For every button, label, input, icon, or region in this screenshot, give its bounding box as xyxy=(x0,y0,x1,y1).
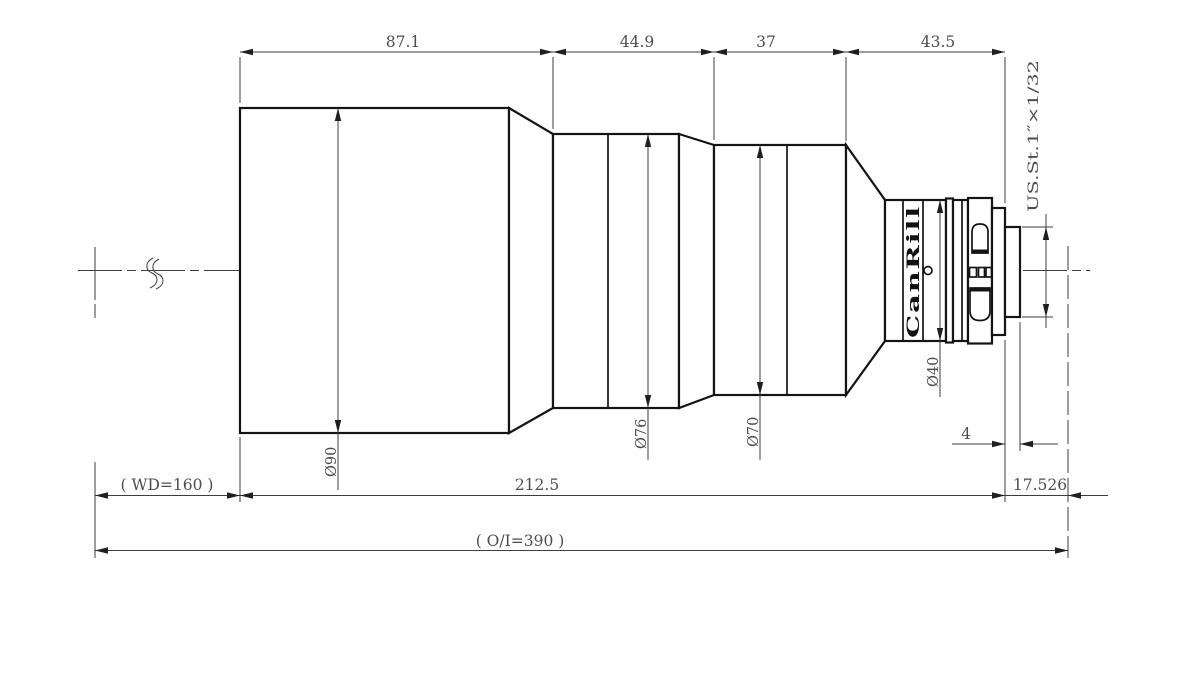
flange-ring xyxy=(992,208,1005,335)
mount-thread xyxy=(1005,227,1020,317)
barrel-70 xyxy=(714,145,846,395)
drawing-page: CanRill 87.1 44.9 37 43.5 Ø90 Ø76 xyxy=(0,0,1200,694)
dim-thread: US.St.1″×1/32 xyxy=(1026,60,1042,212)
dim-87-1: 87.1 xyxy=(386,33,421,51)
lens-technical-drawing: CanRill 87.1 44.9 37 43.5 Ø90 Ø76 xyxy=(0,0,1200,694)
dim-4: 4 xyxy=(961,425,971,443)
dim-oi: ( O/I=390 ) xyxy=(476,532,565,550)
dim-dia70: Ø70 xyxy=(746,417,762,447)
lens-body xyxy=(240,108,1020,433)
dim-44-9: 44.9 xyxy=(620,33,655,51)
dim-212-5: 212.5 xyxy=(515,476,559,494)
dim-37: 37 xyxy=(756,33,776,51)
taper-70-40 xyxy=(846,145,885,395)
taper-76-70 xyxy=(679,134,714,408)
brand-label: CanRill xyxy=(904,205,924,338)
rear-ring xyxy=(953,200,968,341)
barrel-76 xyxy=(553,134,679,408)
dim-wd: ( WD=160 ) xyxy=(121,476,214,494)
thumbscrew-ring xyxy=(968,198,992,344)
taper-90-76 xyxy=(509,108,553,433)
dim-dia40: Ø40 xyxy=(926,357,942,387)
dim-dia76: Ø76 xyxy=(634,419,650,449)
dim-43-5: 43.5 xyxy=(921,33,956,51)
front-barrel-90 xyxy=(240,108,509,433)
dim-17-526: 17.526 xyxy=(1013,476,1067,494)
dim-dia90: Ø90 xyxy=(324,447,340,477)
